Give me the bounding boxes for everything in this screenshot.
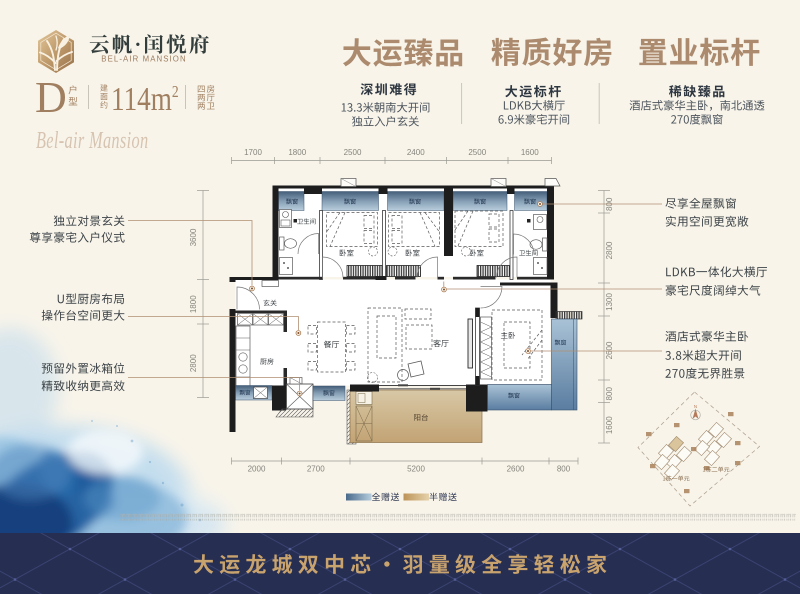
svg-text:1800: 1800 — [189, 295, 198, 313]
svg-text:2800: 2800 — [189, 354, 198, 372]
svg-text:5200: 5200 — [407, 465, 425, 474]
svg-text:1600: 1600 — [605, 416, 614, 434]
svg-text:2400: 2400 — [407, 148, 425, 157]
svg-text:2600: 2600 — [507, 465, 525, 474]
svg-text:2600: 2600 — [605, 341, 614, 359]
svg-text:1300: 1300 — [605, 293, 614, 311]
svg-text:114m2: 114m2 — [111, 80, 179, 118]
svg-text:2500: 2500 — [344, 148, 362, 157]
svg-text:1800: 1800 — [288, 148, 306, 157]
svg-text:2700: 2700 — [307, 465, 325, 474]
svg-text:2000: 2000 — [248, 465, 266, 474]
svg-text:D: D — [35, 73, 67, 122]
svg-text:Bel-air Mansion: Bel-air Mansion — [36, 128, 148, 154]
svg-text:1700: 1700 — [244, 148, 262, 157]
svg-text:2500: 2500 — [468, 148, 486, 157]
svg-text:800: 800 — [605, 387, 614, 401]
svg-text:1600: 1600 — [521, 148, 539, 157]
svg-text:2800: 2800 — [605, 241, 614, 259]
svg-text:N: N — [694, 404, 697, 409]
svg-text:3600: 3600 — [189, 228, 198, 246]
svg-text:800: 800 — [557, 465, 571, 474]
svg-text:BEL-AIR MANSION: BEL-AIR MANSION — [101, 55, 186, 64]
